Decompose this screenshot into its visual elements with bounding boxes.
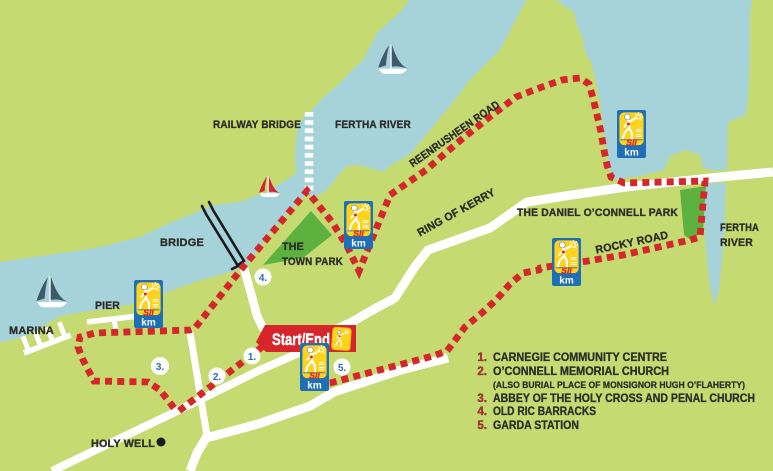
svg-text:O’CONNELL MEMORIAL CHURCH: O’CONNELL MEMORIAL CHURCH <box>493 366 669 378</box>
svg-text:MARINA: MARINA <box>9 325 54 337</box>
svg-text:5.: 5. <box>477 420 487 432</box>
svg-text:CARNEGIE COMMUNITY CENTRE: CARNEGIE COMMUNITY CENTRE <box>493 352 667 364</box>
svg-text:2.: 2. <box>213 372 222 383</box>
svg-text:HOLY WELL: HOLY WELL <box>91 438 155 450</box>
svg-text:OLD RIC BARRACKS: OLD RIC BARRACKS <box>493 406 596 418</box>
svg-text:4.: 4. <box>477 406 487 418</box>
svg-text:BRIDGE: BRIDGE <box>160 237 204 249</box>
svg-text:FERTHA RIVER: FERTHA RIVER <box>335 119 411 131</box>
svg-text:GARDA STATION: GARDA STATION <box>493 420 579 432</box>
svg-text:5.: 5. <box>338 363 347 374</box>
svg-text:RIVER: RIVER <box>720 237 753 249</box>
svg-text:THE DANIEL O’CONNELL PARK: THE DANIEL O’CONNELL PARK <box>517 207 678 219</box>
svg-text:TOWN PARK: TOWN PARK <box>282 256 343 268</box>
svg-text:4.: 4. <box>259 273 268 284</box>
svg-text:3.: 3. <box>156 362 165 373</box>
svg-text:3.: 3. <box>477 393 487 405</box>
svg-text:THE: THE <box>282 241 304 253</box>
svg-text:(ALSO BURIAL PLACE OF MONSIGNO: (ALSO BURIAL PLACE OF MONSIGNOR HUGH O’F… <box>493 380 745 391</box>
svg-text:1.: 1. <box>248 352 257 363</box>
svg-text:RAILWAY BRIDGE: RAILWAY BRIDGE <box>213 119 301 131</box>
svg-text:PIER: PIER <box>95 300 120 312</box>
svg-text:FERTHA: FERTHA <box>720 222 759 234</box>
svg-text:2.: 2. <box>477 366 487 378</box>
svg-text:ABBEY OF THE HOLY CROSS AND PE: ABBEY OF THE HOLY CROSS AND PENAL CHURCH <box>493 393 755 405</box>
svg-text:1.: 1. <box>477 352 487 364</box>
